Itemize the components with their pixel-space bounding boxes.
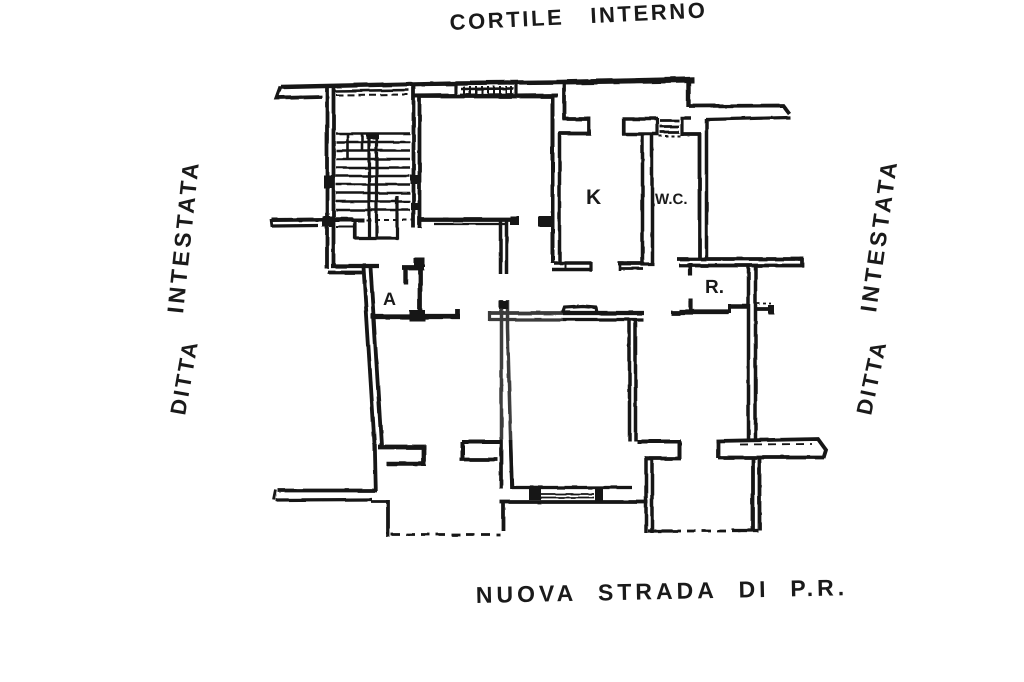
svg-text:W.C.: W.C.: [655, 191, 688, 208]
svg-text:K: K: [586, 186, 601, 209]
svg-text:NUOVA STRADA DI P.R.: NUOVA STRADA DI P.R.: [476, 574, 849, 608]
svg-text:R.: R.: [705, 277, 724, 298]
svg-text:A: A: [383, 289, 396, 309]
svg-text:INTESTATA: INTESTATA: [855, 157, 902, 314]
svg-text:INTESTATA: INTESTATA: [162, 158, 204, 314]
svg-text:DITTA: DITTA: [851, 337, 891, 417]
svg-text:CORTILE INTERNO: CORTILE INTERNO: [449, 0, 708, 35]
svg-text:DITTA: DITTA: [165, 338, 203, 417]
